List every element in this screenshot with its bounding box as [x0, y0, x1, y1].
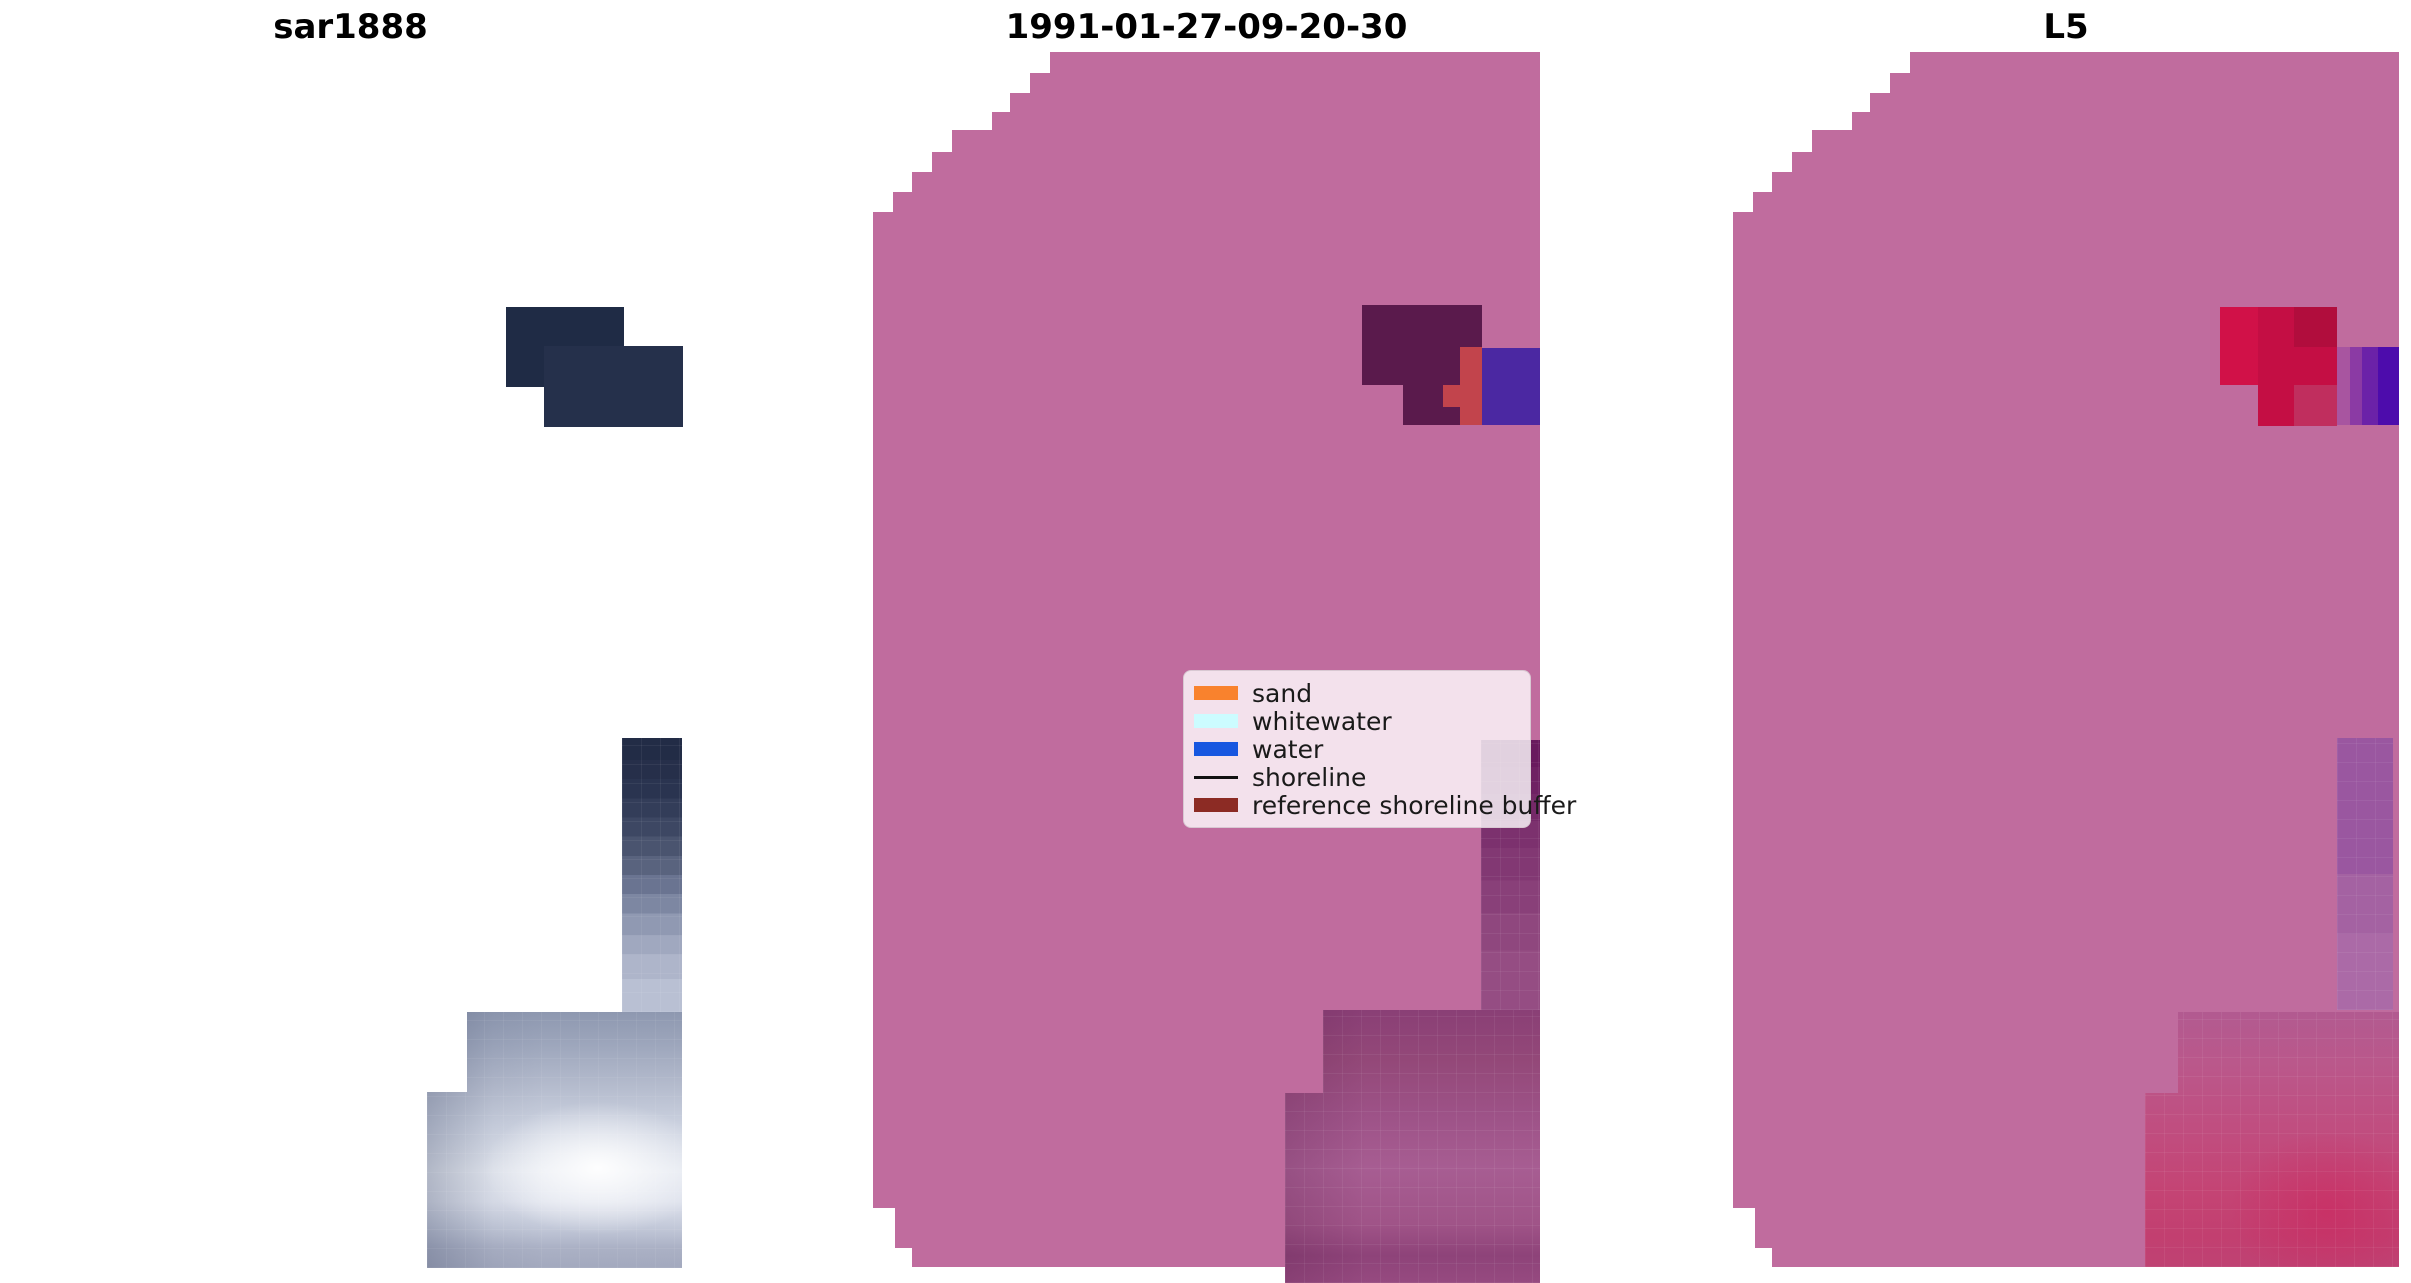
legend-label-sand: sand: [1252, 681, 1312, 706]
legend: sand whitewater water shoreline referenc…: [1183, 670, 1531, 828]
l5-swath: [1733, 52, 2399, 1283]
shoreline-line-swatch: [1194, 776, 1238, 779]
panel-title-date: 1991-01-27-09-20-30: [873, 5, 1540, 49]
panel-title-sar: sar1888: [17, 5, 684, 49]
l5-crimson-patch-lower-pink: [2294, 385, 2337, 426]
classified-swath: [873, 52, 1540, 1283]
legend-item-whitewater: whitewater: [1194, 707, 1520, 735]
sar-bright-patch: [427, 1012, 682, 1268]
figure-canvas: sar1888 1991-01-27-09-20-30 L5: [0, 0, 2411, 1283]
reference-shoreline-buffer-swatch: [1194, 798, 1238, 812]
legend-item-water: water: [1194, 735, 1520, 763]
legend-item-sand: sand: [1194, 679, 1520, 707]
legend-label-reference-shoreline-buffer: reference shoreline buffer: [1252, 793, 1576, 818]
sar-gradient-column: [622, 738, 682, 1012]
water-swatch: [1194, 742, 1238, 756]
l5-purple-stripe-2: [2350, 347, 2362, 425]
l5-purple-stripe-3: [2362, 347, 2378, 425]
legend-item-reference-shoreline-buffer: reference shoreline buffer: [1194, 791, 1520, 819]
sar-dark-return-lower: [544, 346, 683, 427]
classified-red-patch: [1460, 347, 1482, 425]
l5-crimson-patch-light: [2220, 307, 2258, 385]
legend-label-whitewater: whitewater: [1252, 709, 1392, 734]
l5-purple-stripe-4: [2378, 347, 2399, 425]
panel-title-l5: L5: [1733, 5, 2399, 49]
l5-crimson-patch-dark: [2294, 307, 2337, 347]
legend-label-shoreline: shoreline: [1252, 765, 1366, 790]
legend-label-water: water: [1252, 737, 1323, 762]
l5-purple-stripe-1: [2337, 347, 2350, 425]
whitewater-swatch: [1194, 714, 1238, 728]
classified-red-patch-notch: [1443, 385, 1460, 407]
l5-bottom-pink-red-block: [2145, 1012, 2399, 1267]
classified-bottom-mauve-block: [1285, 1010, 1540, 1283]
legend-item-shoreline: shoreline: [1194, 763, 1520, 791]
l5-right-light-purple-strip: [2337, 738, 2393, 1010]
sand-swatch: [1194, 686, 1238, 700]
classified-indigo-patch: [1482, 348, 1540, 425]
